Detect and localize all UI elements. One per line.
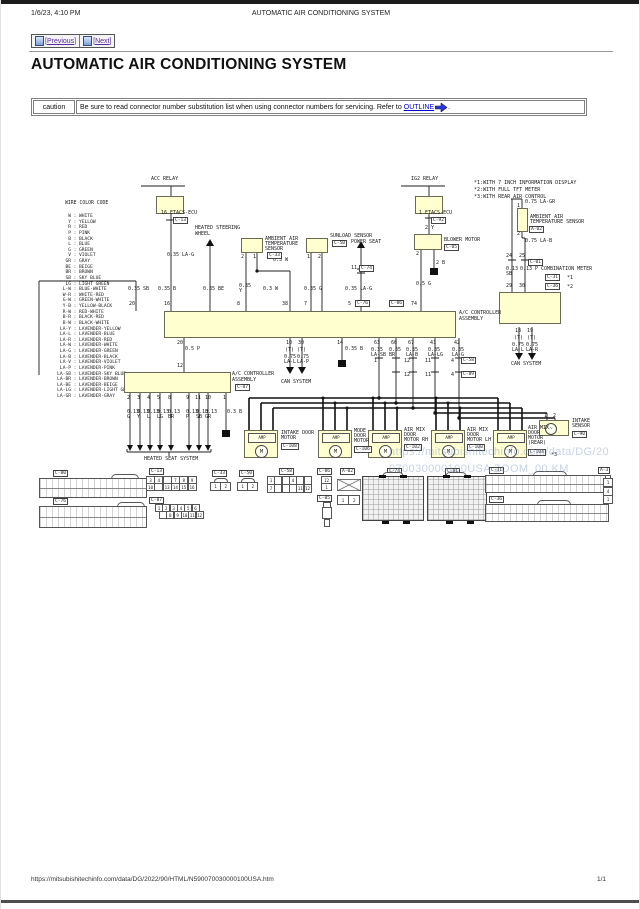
- connector-tag: C-108: [281, 443, 299, 450]
- C-05-shape: [322, 502, 332, 526]
- diagram-element: [214, 478, 228, 482]
- diagram-label: (T): [527, 336, 536, 341]
- diagram-label: 2: [553, 414, 556, 419]
- connector-pin-cell: 16: [188, 483, 197, 491]
- diagram-label: 2: [517, 232, 520, 237]
- connector-diagram-label: C-50: [239, 470, 254, 477]
- diagram-label: 0.35 LA-G: [345, 287, 372, 292]
- intake-door-motor-amp: AMP: [248, 433, 276, 443]
- connector-diagram-label: C-80: [53, 470, 68, 477]
- connector-pin-cell: 12: [196, 511, 204, 519]
- diagram-label: 0.35 B: [345, 347, 363, 352]
- diagram-element: [403, 521, 410, 524]
- ac-controller-main-box: [164, 311, 456, 338]
- connector-tag: C-36: [545, 283, 560, 290]
- connector-tag: C-89: [461, 371, 476, 378]
- diagram-label: 41: [430, 341, 436, 346]
- diagram-element: [40, 488, 146, 489]
- diagram-label: (T): [514, 336, 523, 341]
- ambient-sensor-box: [241, 238, 263, 253]
- diagram-label: 16: [164, 302, 170, 307]
- diagram-label: LA-P: [297, 360, 309, 365]
- diagram-label: 63: [374, 341, 380, 346]
- diagram-label: 30: [298, 341, 304, 346]
- diagram-label: MOTOR LH: [467, 438, 491, 443]
- diagram-label: POWER SEAT: [351, 240, 381, 245]
- connector-pin-row: 1013141516: [146, 483, 196, 490]
- diagram-label: GR: [205, 415, 211, 420]
- connector-pin-row: 1: [321, 483, 331, 490]
- diagram-label: SB: [196, 415, 202, 420]
- mode-door-motor-symbol: M: [329, 445, 342, 458]
- connector-tag: C-01: [528, 259, 543, 266]
- diagram-label: G: [127, 415, 130, 420]
- diagram-label: MOTOR: [354, 439, 369, 444]
- diagram-label: 2: [318, 255, 321, 260]
- diagram-label: BLOWER MOTOR: [444, 238, 480, 243]
- diagram-label: (T): [297, 348, 306, 353]
- connector-tag: C-05: [444, 244, 459, 251]
- connector-pin-row: 12: [321, 476, 331, 483]
- diagram-label: 66: [391, 341, 397, 346]
- diagram-label: SB: [506, 272, 512, 277]
- connector-tag: C-13: [173, 217, 188, 224]
- connector-pin-row: 89101112: [159, 511, 203, 518]
- diagram-label: 4: [451, 373, 454, 378]
- sunload-sensor-box: [306, 238, 328, 253]
- diagram-label: 20: [177, 341, 183, 346]
- diagram-label: 0.13 P: [520, 267, 538, 272]
- diagram-element: 1: [603, 495, 613, 504]
- diagram-label: MOTOR: [281, 436, 296, 441]
- C-76-grid: [39, 506, 147, 528]
- connector-pin-cell: 1: [321, 483, 332, 491]
- diagram-label: Y: [239, 289, 242, 294]
- connector-diagram-label: C-36: [489, 496, 504, 503]
- diagram-label: LA-R: [526, 348, 538, 353]
- ac-controller-sub-box: [124, 372, 231, 393]
- diagram-label: *2:WITH FULL TFT METER: [474, 188, 540, 193]
- diagram-label: 0.5 G: [416, 282, 431, 287]
- diagram-label: *2: [567, 285, 573, 290]
- diagram-label: L: [147, 415, 150, 420]
- diagram-label: 1: [374, 359, 377, 364]
- intake-door-motor-symbol: M: [255, 445, 268, 458]
- diagram-label: 12: [404, 359, 410, 364]
- diagram-label: 0.75 LA-B: [525, 239, 552, 244]
- connector-tag: C-90: [572, 431, 587, 438]
- diagram-label: 2 B: [436, 261, 445, 266]
- diagram-label: WHEEL: [195, 232, 210, 237]
- diagram-label: BR: [389, 353, 395, 358]
- diagram-label: 20: [129, 302, 135, 307]
- diagram-label: 0.35 BE: [203, 287, 224, 292]
- diagram-label: 4: [147, 396, 150, 401]
- diagram-element: [446, 521, 453, 524]
- diagram-label: 25: [519, 254, 525, 259]
- diagram-label: 5: [157, 396, 160, 401]
- diagram-label: 2: [416, 252, 419, 257]
- diagram-label: 1: [544, 414, 547, 419]
- connector-tag: C-33: [267, 252, 282, 259]
- footer-url: https://mitsubishitechinfo.com/data/DG/2…: [31, 876, 274, 883]
- diagram-label: MOTOR RH: [404, 438, 428, 443]
- diagram-label: 29: [506, 284, 512, 289]
- connector-diagram-label: C-58: [279, 468, 294, 475]
- diagram-label: *1:WITH 7 INCH INFORMATION DISPLAY: [474, 181, 576, 186]
- diagram-label: 1: [253, 255, 256, 260]
- diagram-label: 12: [177, 364, 183, 369]
- footer-page-number: 1/1: [597, 876, 606, 883]
- diagram-label: 8: [168, 396, 171, 401]
- connector-pin-row: 71112: [267, 484, 311, 492]
- connector-diagram-label: C-86: [317, 468, 332, 475]
- C-13-grid: 347891013141516: [146, 476, 196, 491]
- connector-pin-row: 14: [267, 476, 311, 484]
- diagram-element: [382, 521, 389, 524]
- diagram-label: LA-L: [284, 360, 296, 365]
- diagram-label: 0.5 P: [185, 347, 200, 352]
- connector-tag: C-86: [389, 300, 404, 307]
- connector-pin-row: 123456: [155, 504, 203, 511]
- air-mix-door-motor-lh-amp: AMP: [435, 433, 463, 443]
- diagram-label: CAN SYSTEM: [511, 362, 541, 367]
- diagram-label: 10: [205, 396, 211, 401]
- diagram-label: 11: [425, 359, 431, 364]
- diagram-label: 2: [241, 255, 244, 260]
- connector-pin-cell: 2: [348, 495, 360, 505]
- diagram-label: 0.35 G: [304, 287, 322, 292]
- connector-tag: C-74: [359, 265, 374, 272]
- C-50-shape: 12: [237, 478, 258, 490]
- connector-pin-cell: 12: [304, 484, 312, 493]
- fuse-symbols: [160, 198, 437, 212]
- connector-pin-cell: 2: [220, 482, 231, 491]
- diagram-label: CAN SYSTEM: [281, 380, 311, 385]
- diagram-label: 18: [515, 329, 521, 334]
- diagram-label: 1: [223, 396, 226, 401]
- diagram-label: 5: [348, 302, 351, 307]
- diagram-label: 7: [304, 302, 307, 307]
- connector-pin-cell: 2: [247, 482, 258, 491]
- A-3-shape: 141: [603, 475, 613, 503]
- diagram-element: [486, 484, 608, 485]
- air-mix-door-motor-rh-amp: AMP: [372, 433, 400, 443]
- diagram-label: 2 Y: [425, 226, 434, 231]
- diagram-label: *1: [567, 276, 573, 281]
- diagram-label: ASSEMBLY: [232, 378, 256, 383]
- diagram-label: 10: [286, 341, 292, 346]
- A-02-shape: 12: [337, 476, 361, 504]
- diagram-label: 0.75 LA-GR: [525, 200, 555, 205]
- diagram-element: [40, 517, 146, 518]
- connector-diagram-label: C-13: [149, 468, 164, 475]
- connector-tag: A-02: [529, 226, 544, 233]
- C-87-grid: 12345689101112: [155, 504, 203, 519]
- C-80-grid: [39, 478, 147, 498]
- diagram-label: 14: [337, 341, 343, 346]
- diagram-label: 11: [351, 266, 357, 271]
- document-page: 1/6/23, 4:10 PM AUTOMATIC AIR CONDITIONI…: [0, 0, 640, 909]
- diagram-label: 2: [127, 396, 130, 401]
- C-58-grid: 1471112: [267, 476, 311, 493]
- diagram-label: 1: [517, 204, 520, 209]
- diagram-label: COMBINATION METER: [541, 267, 592, 272]
- diagram-label: 11: [425, 373, 431, 378]
- connector-tag: C-58: [461, 357, 476, 364]
- connector-pin-row: 12: [237, 482, 258, 490]
- diagram-element: [486, 513, 608, 514]
- connector-pin-row: 12: [210, 482, 231, 490]
- C-86-shape: 121: [321, 476, 331, 491]
- connector-tag: C-50: [332, 240, 347, 247]
- diagram-label: 1: [307, 255, 310, 260]
- diagram-label: 0.35 SB: [128, 287, 149, 292]
- ambient-sensor-a02-box: [517, 208, 528, 232]
- connector-pin-row: 12: [337, 495, 361, 504]
- acc-relay-label: ACC RELAY: [151, 177, 178, 182]
- diagram-label: 0.35 LA-G: [167, 253, 194, 258]
- mode-door-motor-amp: AMP: [322, 433, 350, 443]
- diagram-label: SENSOR: [572, 424, 590, 429]
- diagram-label: Y: [137, 415, 140, 420]
- connector-tag: C-87: [235, 384, 250, 391]
- diagram-label: 30: [519, 284, 525, 289]
- diagram-label: 24: [506, 254, 512, 259]
- connector-diagram-label: C-05: [317, 495, 332, 502]
- diagram-label: 16 ETACS-ECU: [161, 211, 197, 216]
- connector-diagram-label: C-33: [212, 470, 227, 477]
- diagram-label: HEATED SEAT SYSTEM: [144, 457, 198, 462]
- diagram-label: 74: [411, 302, 417, 307]
- combination-meter-box: [499, 292, 561, 324]
- connector-tag: C-31: [545, 274, 560, 281]
- diagram-label: ASSEMBLY: [459, 317, 483, 322]
- diagram-label: 0.3 W: [263, 287, 278, 292]
- diagram-label: 11: [195, 396, 201, 401]
- connector-pin-row: 34789: [146, 476, 196, 483]
- air-mix-door-motor-rear-amp: AMP: [497, 433, 525, 443]
- diagram-label: 38: [282, 302, 288, 307]
- connector-diagram-label: A-02: [340, 468, 355, 475]
- C-36-grid: [485, 504, 609, 522]
- diagram-label: 3: [137, 396, 140, 401]
- diagram-element: [322, 507, 332, 519]
- diagram-element: [241, 478, 255, 482]
- C-33-shape: 12: [210, 478, 231, 490]
- diagram-label: 67: [408, 341, 414, 346]
- diagram-label: LA-L: [512, 348, 524, 353]
- connector-diagram-label: C-76: [53, 498, 68, 505]
- diagram-label: P: [186, 415, 189, 420]
- diagram-label: 42: [454, 341, 460, 346]
- C-81-grid: [427, 476, 487, 521]
- watermark: https://mitsubishitechinfo.com/data/DG/2…: [389, 444, 609, 478]
- connector-tag: C-92: [431, 217, 446, 224]
- diagram-label: 1 ETACS-ECU: [419, 211, 452, 216]
- diagram-label: BR: [168, 415, 174, 420]
- diagram-label: TEMPERATURE SENSOR: [530, 220, 584, 225]
- diagram-label: (T): [285, 348, 294, 353]
- diagram-label: 8: [237, 302, 240, 307]
- blower-motor-box: [414, 234, 442, 250]
- connector-tag: C-76: [355, 300, 370, 307]
- diagram-label: 0.35 B: [158, 287, 176, 292]
- page-bottom-border: [1, 900, 640, 903]
- C-74-grid: [362, 476, 424, 521]
- connector-tag: C-106: [354, 446, 372, 453]
- diagram-element: [467, 521, 474, 524]
- connector-diagram-label: C-87: [149, 497, 164, 504]
- diagram-label: 4: [451, 359, 454, 364]
- diagram-label: 12: [404, 373, 410, 378]
- diagram-element: [324, 519, 330, 527]
- connector-pin-cell: 1: [337, 495, 349, 505]
- ig2-relay-label: IG2 RELAY: [411, 177, 438, 182]
- diagram-label: 9: [186, 396, 189, 401]
- diagram-label: 19: [527, 329, 533, 334]
- diagram-label: LG: [157, 415, 163, 420]
- diagram-element: [379, 475, 386, 478]
- diagram-label: 0.3 B: [227, 410, 242, 415]
